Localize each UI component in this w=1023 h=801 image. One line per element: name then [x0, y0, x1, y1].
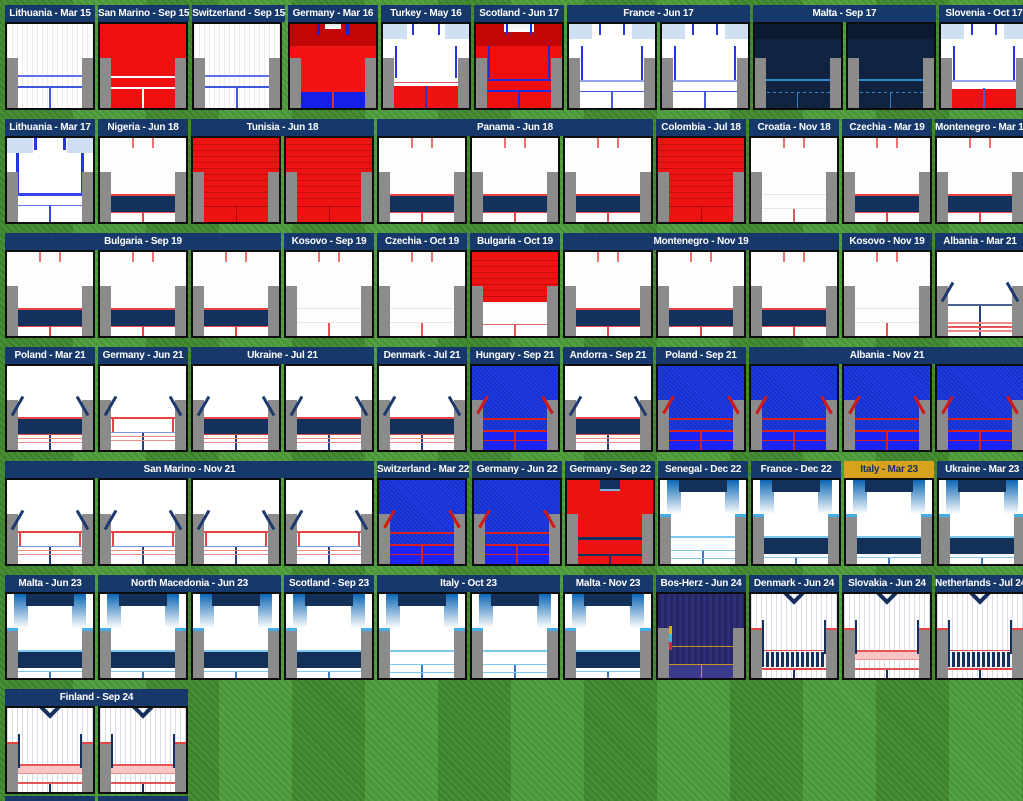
jersey-white17	[567, 22, 657, 110]
right-sleeve	[268, 286, 279, 336]
jersey-diagband21	[5, 364, 95, 452]
match-header: Ukraine - Mar 23	[937, 461, 1023, 478]
left-sleeve	[939, 514, 950, 564]
left-sleeve	[193, 172, 204, 222]
left-sleeve	[100, 742, 111, 792]
right-sleeve	[642, 514, 653, 564]
jersey-strip	[749, 364, 1023, 452]
match-header: France - Dec 22	[751, 461, 841, 478]
right-sleeve	[365, 58, 376, 108]
match-cell[interactable]: Kosovo - Sep 19	[284, 233, 374, 338]
match-header: Italy - Mar 23	[844, 461, 934, 478]
match-header: Senegal - Dec 22	[658, 461, 748, 478]
jersey-white17	[660, 22, 750, 110]
left-sleeve	[100, 286, 111, 336]
jersey-blue21	[656, 364, 746, 452]
right-sleeve	[551, 58, 562, 108]
jersey-gradientband22	[284, 592, 374, 680]
jersey-gradientband22	[751, 478, 841, 566]
match-cell[interactable]: Tunisia - Jun 18	[191, 119, 374, 224]
jersey-germany16	[288, 22, 378, 110]
jersey-strip	[381, 22, 471, 110]
right-sleeve	[919, 628, 930, 678]
jersey-navyband18	[5, 250, 95, 338]
jersey-lithuania17	[5, 136, 95, 224]
left-sleeve	[193, 628, 204, 678]
left-sleeve	[7, 742, 18, 792]
jersey-strip	[567, 22, 750, 110]
match-cell[interactable]: Montenegro - Mar 19	[935, 119, 1023, 224]
jersey-slovenia17	[939, 22, 1023, 110]
right-sleeve	[919, 172, 930, 222]
left-sleeve	[846, 514, 857, 564]
match-cell[interactable]: San Marino - Sep 15	[98, 5, 189, 110]
match-header: Denmark - Jun 24	[749, 575, 839, 592]
jersey-strip	[98, 22, 189, 110]
jersey-strip	[192, 22, 285, 110]
jersey-strip	[474, 22, 564, 110]
right-sleeve	[82, 628, 93, 678]
jersey-strip	[658, 478, 748, 566]
jersey-strip	[563, 250, 839, 338]
jersey-navyband18	[656, 250, 746, 338]
left-sleeve	[658, 172, 669, 222]
right-sleeve	[1014, 514, 1023, 564]
match-cell[interactable]: Lithuania - Mar 17	[5, 119, 95, 224]
match-cell[interactable]: Kosovo - Nov 19	[842, 233, 932, 338]
left-sleeve	[751, 286, 762, 336]
kit-row: Lithuania - Mar 15San Marino - Sep 15Swi…	[5, 5, 1023, 110]
left-sleeve	[658, 628, 669, 678]
match-header: Slovakia - Jun 24	[842, 575, 932, 592]
right-sleeve	[644, 58, 655, 108]
jersey-blue21	[749, 364, 839, 452]
left-sleeve	[100, 58, 111, 108]
jersey-redtex18	[191, 136, 281, 224]
match-cell[interactable]: Hungary - Sep 21	[470, 347, 560, 452]
right-sleeve	[175, 58, 186, 108]
left-sleeve	[100, 172, 111, 222]
jersey-gradientband22	[98, 592, 188, 680]
match-cell[interactable]: Germany - Sep 22	[565, 461, 655, 566]
left-sleeve	[286, 628, 297, 678]
match-cell[interactable]: Senegal - Dec 22	[658, 461, 748, 566]
left-sleeve	[755, 58, 766, 108]
match-cell[interactable]: Scotland - Jun 17	[474, 5, 564, 110]
match-cell[interactable]: Denmark - Jul 21	[377, 347, 467, 452]
jersey-whiteplain	[749, 136, 839, 224]
jersey-gradientband22	[5, 592, 95, 680]
jersey-gradientband22	[937, 478, 1023, 566]
jersey-strip	[842, 250, 932, 338]
match-cell[interactable]: France - Dec 22	[751, 461, 841, 566]
jersey-strip	[935, 250, 1023, 338]
match-header: Hungary - Sep 21	[470, 347, 560, 364]
match-cell[interactable]: Bulgaria - Oct 19	[470, 233, 560, 338]
jersey-blue21	[377, 478, 467, 566]
match-header: Croatia - Nov 18	[749, 119, 839, 136]
jersey-strip	[5, 706, 188, 794]
jersey-strip	[844, 478, 934, 566]
jersey-navyband18	[935, 136, 1023, 224]
left-sleeve	[660, 514, 671, 564]
v-collar	[967, 592, 992, 605]
match-header: Germany - Sep 22	[565, 461, 655, 478]
left-sleeve	[565, 286, 576, 336]
jersey-strip	[5, 364, 95, 452]
jersey-strip	[472, 478, 562, 566]
kit-row: San Marino - Nov 21Switzerland - Mar 22G…	[5, 461, 1023, 566]
v-collar	[874, 592, 899, 605]
match-header: Lithuania - Mar 17	[5, 119, 95, 136]
match-header: Bulgaria - Sep 19	[5, 233, 281, 250]
right-sleeve	[175, 628, 186, 678]
cutoff-next-row-header	[98, 796, 188, 801]
left-sleeve	[941, 58, 952, 108]
jersey-pinstripe24red	[98, 706, 188, 794]
right-sleeve	[82, 58, 93, 108]
match-header: Tunisia - Jun 18	[191, 119, 374, 136]
match-header: Switzerland - Mar 22	[377, 461, 469, 478]
match-cell[interactable]: San Marino - Nov 21	[5, 461, 374, 566]
match-cell[interactable]: Bulgaria - Sep 19	[5, 233, 281, 338]
right-sleeve	[268, 628, 279, 678]
jersey-navyband18	[98, 136, 188, 224]
jersey-strip	[751, 478, 841, 566]
left-sleeve	[100, 628, 111, 678]
right-sleeve	[919, 286, 930, 336]
match-header: Montenegro - Mar 19	[935, 119, 1023, 136]
left-sleeve	[658, 286, 669, 336]
match-cell[interactable]: Italy - Oct 23	[377, 575, 560, 680]
match-cell[interactable]: France - Jun 17	[567, 5, 750, 110]
jersey-navyband18	[749, 250, 839, 338]
jersey-strip	[284, 250, 374, 338]
match-cell[interactable]: Albania - Nov 21	[749, 347, 1023, 452]
left-sleeve	[379, 172, 390, 222]
jersey-strip	[191, 136, 374, 224]
left-sleeve	[193, 286, 204, 336]
match-header: Poland - Sep 21	[656, 347, 746, 364]
match-cell[interactable]: Germany - Jun 22	[472, 461, 562, 566]
left-sleeve	[844, 172, 855, 222]
match-header: Panama - Jun 18	[377, 119, 653, 136]
jersey-pinstripe15	[192, 22, 282, 110]
match-cell[interactable]: Scotland - Sep 23	[284, 575, 374, 680]
kit-row: Lithuania - Mar 17Nigeria - Jun 18Tunisi…	[5, 119, 1023, 224]
match-header: San Marino - Sep 15	[98, 5, 189, 22]
match-header: Germany - Jun 22	[472, 461, 562, 478]
jersey-strip	[377, 478, 469, 566]
jersey-diagband21	[563, 364, 653, 452]
right-sleeve	[547, 628, 558, 678]
right-sleeve	[269, 58, 280, 108]
match-cell[interactable]: Malta - Jun 23	[5, 575, 95, 680]
match-cell[interactable]: Ukraine - Jul 21	[191, 347, 374, 452]
left-sleeve	[753, 514, 764, 564]
jersey-strip	[563, 364, 653, 452]
jersey-diagwhite21	[98, 364, 188, 452]
jersey-strip	[98, 592, 281, 680]
right-sleeve	[640, 172, 651, 222]
match-cell[interactable]: Montenegro - Nov 19	[563, 233, 839, 338]
jersey-strip	[937, 478, 1023, 566]
jersey-redtex18	[284, 136, 374, 224]
match-cell[interactable]: Malta - Nov 23	[563, 575, 653, 680]
v-collar	[130, 706, 155, 719]
jersey-blue21	[470, 364, 560, 452]
match-header: Netherlands - Jul 24	[935, 575, 1023, 592]
jersey-strip	[98, 364, 188, 452]
left-sleeve	[662, 58, 673, 108]
match-cell[interactable]: Lithuania - Mar 15	[5, 5, 95, 110]
match-cell[interactable]: Germany - Mar 16	[288, 5, 378, 110]
right-sleeve	[454, 286, 465, 336]
jersey-strip	[470, 364, 560, 452]
jersey-whiteplain	[377, 250, 467, 338]
jersey-pinstripe24red	[842, 592, 932, 680]
kit-row: Malta - Jun 23North Macedonia - Jun 23Sc…	[5, 575, 1023, 680]
match-header: Kosovo - Sep 19	[284, 233, 374, 250]
jersey-strip	[939, 22, 1023, 110]
jersey-diagband21	[191, 364, 281, 452]
jersey-diagwhite21	[191, 478, 281, 566]
match-cell[interactable]: Panama - Jun 18	[377, 119, 653, 224]
match-header: Lithuania - Mar 15	[5, 5, 95, 22]
match-cell[interactable]: Finland - Sep 24	[5, 689, 188, 794]
right-sleeve	[268, 172, 279, 222]
jersey-navyband18	[98, 250, 188, 338]
jersey-whiteplain	[842, 250, 932, 338]
jersey-navyband18	[563, 250, 653, 338]
jersey-redtex18	[656, 136, 746, 224]
jersey-strip	[563, 592, 653, 680]
jersey-strip	[5, 22, 95, 110]
left-sleeve	[379, 628, 390, 678]
left-sleeve	[569, 58, 580, 108]
left-sleeve	[7, 286, 18, 336]
jersey-strip	[377, 250, 467, 338]
match-header: Albania - Nov 21	[749, 347, 1023, 364]
left-sleeve	[751, 172, 762, 222]
match-header: Albania - Mar 21	[935, 233, 1023, 250]
match-cell[interactable]: Malta - Sep 17	[753, 5, 936, 110]
match-header: Montenegro - Nov 19	[563, 233, 839, 250]
jersey-strip	[935, 136, 1023, 224]
jersey-strip	[5, 478, 374, 566]
right-sleeve	[1012, 172, 1023, 222]
right-sleeve	[175, 742, 186, 792]
left-sleeve	[567, 514, 578, 564]
right-sleeve	[830, 58, 841, 108]
match-cell[interactable]: Croatia - Nov 18	[749, 119, 839, 224]
match-cell[interactable]: Nigeria - Jun 18	[98, 119, 188, 224]
right-sleeve	[1016, 58, 1023, 108]
jersey-blue21	[842, 364, 932, 452]
jersey-navyband18	[563, 136, 653, 224]
match-cell[interactable]: Poland - Mar 21	[5, 347, 95, 452]
left-sleeve	[7, 58, 18, 108]
match-cell[interactable]: Slovakia - Jun 24	[842, 575, 932, 680]
right-sleeve	[82, 742, 93, 792]
left-sleeve	[937, 628, 948, 678]
match-header: Bulgaria - Oct 19	[470, 233, 560, 250]
match-header: Nigeria - Jun 18	[98, 119, 188, 136]
left-sleeve	[848, 58, 859, 108]
v-collar	[781, 592, 806, 605]
jersey-strip	[749, 592, 839, 680]
jersey-strip	[565, 478, 655, 566]
jersey-strip	[5, 250, 281, 338]
left-sleeve	[844, 286, 855, 336]
left-sleeve	[383, 58, 394, 108]
jersey-strip	[377, 136, 653, 224]
jersey-turkey16	[381, 22, 471, 110]
jersey-diagwhite21	[5, 478, 95, 566]
match-header: North Macedonia - Jun 23	[98, 575, 281, 592]
right-sleeve	[737, 58, 748, 108]
match-header: Denmark - Jul 21	[377, 347, 467, 364]
left-sleeve	[7, 628, 18, 678]
jersey-blue21	[935, 364, 1023, 452]
jersey-navyband18	[842, 136, 932, 224]
jersey-navy17	[753, 22, 843, 110]
kit-row: Poland - Mar 21Germany - Jun 21Ukraine -…	[5, 347, 1023, 452]
jersey-whiteplain	[284, 250, 374, 338]
jersey-navyband18	[377, 136, 467, 224]
left-sleeve	[565, 172, 576, 222]
left-sleeve	[472, 286, 483, 336]
jersey-strip	[749, 136, 839, 224]
right-sleeve	[458, 58, 469, 108]
match-cell[interactable]: Andorra - Sep 21	[563, 347, 653, 452]
match-cell[interactable]: Poland - Sep 21	[656, 347, 746, 452]
match-header: Colombia - Jul 18	[656, 119, 746, 136]
jersey-navyband18	[470, 136, 560, 224]
jersey-gradientband22	[563, 592, 653, 680]
match-header: Scotland - Sep 23	[284, 575, 374, 592]
right-sleeve	[547, 172, 558, 222]
left-sleeve	[472, 172, 483, 222]
right-sleeve	[361, 628, 372, 678]
match-cell[interactable]: North Macedonia - Jun 23	[98, 575, 281, 680]
right-sleeve	[826, 628, 837, 678]
left-sleeve	[565, 628, 576, 678]
left-sleeve	[7, 172, 18, 222]
jersey-albania21	[935, 250, 1023, 338]
right-sleeve	[640, 628, 651, 678]
jersey-bosherz24	[656, 592, 746, 680]
match-header: San Marino - Nov 21	[5, 461, 374, 478]
match-cell[interactable]: Netherlands - Jul 24	[935, 575, 1023, 680]
match-header: Slovenia - Oct 17	[939, 5, 1023, 22]
match-cell[interactable]: Albania - Mar 21	[935, 233, 1023, 338]
jersey-strip	[656, 592, 746, 680]
match-header: Malta - Jun 23	[5, 575, 95, 592]
jersey-gradientband22	[191, 592, 281, 680]
right-sleeve	[175, 172, 186, 222]
right-sleeve	[733, 172, 744, 222]
kit-row: Bulgaria - Sep 19Kosovo - Sep 19Czechia …	[5, 233, 1023, 338]
left-sleeve	[844, 628, 855, 678]
left-sleeve	[290, 58, 301, 108]
match-cell[interactable]: Czechia - Mar 19	[842, 119, 932, 224]
match-cell[interactable]: Denmark - Jun 24	[749, 575, 839, 680]
match-cell[interactable]: Colombia - Jul 18	[656, 119, 746, 224]
match-header: Poland - Mar 21	[5, 347, 95, 364]
jersey-strip	[656, 364, 746, 452]
match-header: Turkey - May 16	[381, 5, 471, 22]
kit-grid: Lithuania - Mar 15San Marino - Sep 15Swi…	[0, 0, 1023, 801]
match-cell[interactable]: Ukraine - Mar 23	[937, 461, 1023, 566]
left-sleeve	[472, 628, 483, 678]
right-sleeve	[826, 286, 837, 336]
jersey-scotland17	[474, 22, 564, 110]
jersey-strip	[5, 136, 95, 224]
match-cell[interactable]: Switzerland - Sep 15	[192, 5, 285, 110]
right-sleeve	[454, 172, 465, 222]
jersey-strip	[377, 592, 560, 680]
jersey-gradient22	[658, 478, 748, 566]
jersey-strip	[842, 136, 932, 224]
right-sleeve	[733, 628, 744, 678]
right-sleeve	[82, 172, 93, 222]
right-sleeve	[175, 286, 186, 336]
right-sleeve	[828, 514, 839, 564]
jersey-pinstripe24navy	[935, 592, 1023, 680]
match-header: Finland - Sep 24	[5, 689, 188, 706]
jersey-strip	[284, 592, 374, 680]
jersey-strip	[191, 364, 374, 452]
match-cell[interactable]: Bos-Herz - Jun 24	[656, 575, 746, 680]
match-cell[interactable]: Switzerland - Mar 22	[377, 461, 469, 566]
jersey-bulgaria19	[470, 250, 560, 338]
right-sleeve	[1012, 628, 1023, 678]
match-cell[interactable]: Slovenia - Oct 17	[939, 5, 1023, 110]
left-sleeve	[476, 58, 487, 108]
jersey-strip	[98, 136, 188, 224]
jersey-strip	[842, 592, 932, 680]
right-sleeve	[921, 514, 932, 564]
left-sleeve	[194, 58, 205, 108]
match-header: Switzerland - Sep 15	[192, 5, 285, 22]
right-sleeve	[361, 172, 372, 222]
jersey-strip	[935, 592, 1023, 680]
match-header: Germany - Jun 21	[98, 347, 188, 364]
match-cell[interactable]: Turkey - May 16	[381, 5, 471, 110]
right-sleeve	[454, 628, 465, 678]
match-header: Malta - Sep 17	[753, 5, 936, 22]
jersey-blue21	[472, 478, 562, 566]
jersey-strip	[656, 136, 746, 224]
jersey-diagband21	[284, 364, 374, 452]
match-cell[interactable]: Czechia - Oct 19	[377, 233, 467, 338]
jersey-gradient22	[377, 592, 467, 680]
right-sleeve	[733, 286, 744, 336]
match-header: Malta - Nov 23	[563, 575, 653, 592]
jersey-strip	[377, 364, 467, 452]
match-header: Czechia - Mar 19	[842, 119, 932, 136]
match-cell[interactable]: Germany - Jun 21	[98, 347, 188, 452]
jersey-gradient22	[470, 592, 560, 680]
right-sleeve	[826, 172, 837, 222]
jersey-navy17	[846, 22, 936, 110]
right-sleeve	[361, 286, 372, 336]
jersey-gradientband22	[844, 478, 934, 566]
jersey-strip	[753, 22, 936, 110]
match-cell[interactable]: Italy - Mar 23	[844, 461, 934, 566]
jersey-pinstripe24navy	[749, 592, 839, 680]
